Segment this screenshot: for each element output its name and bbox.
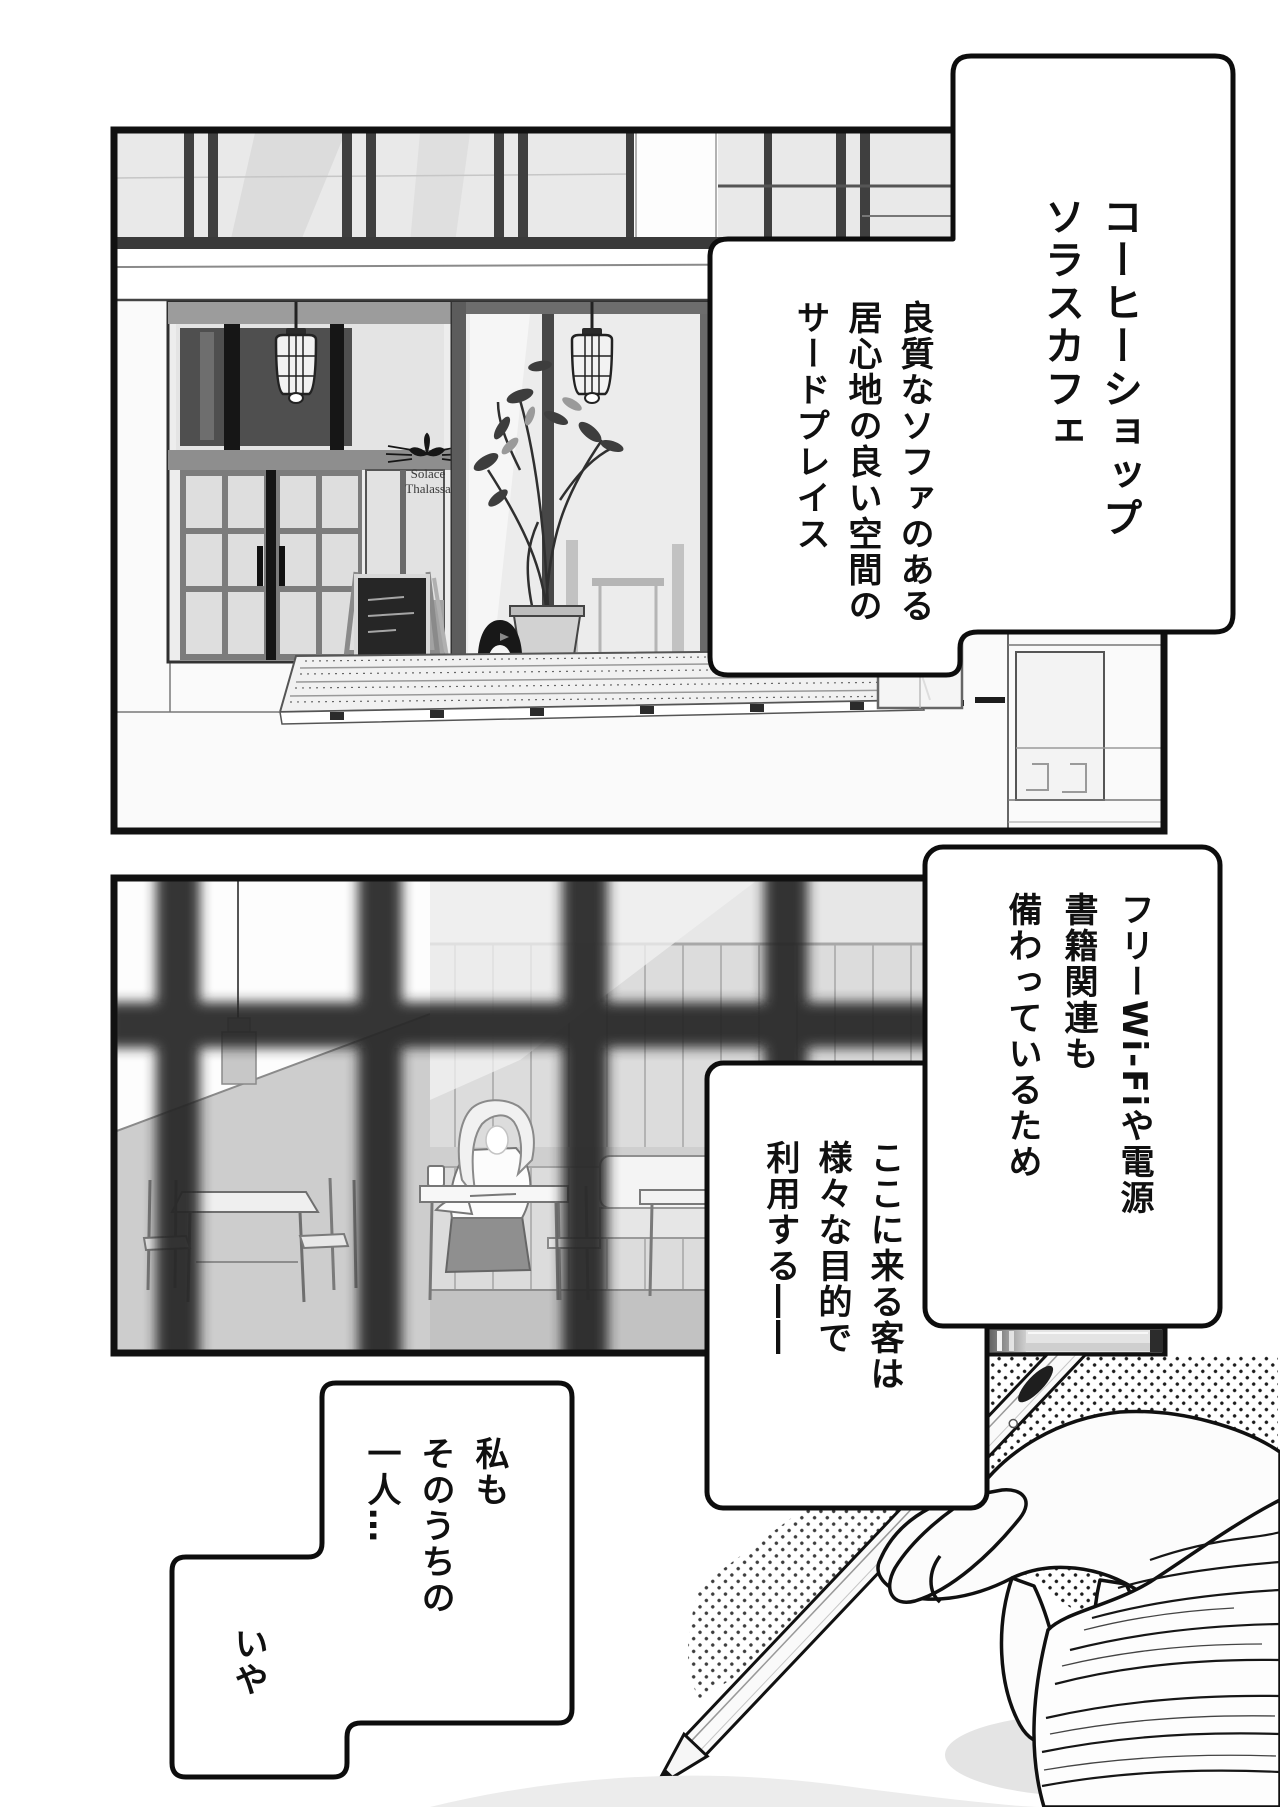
speech-bubble-amenities: フリーWi-Fiや電源 書籍関連も 備わっているため bbox=[994, 892, 1162, 1292]
vertical-text-line: サードプレイス bbox=[784, 300, 836, 650]
vertical-text-line: フリーWi-Fiや電源 bbox=[1106, 892, 1162, 1292]
vertical-text-line: 様々な目的で bbox=[806, 1140, 858, 1480]
vertical-text-line: いや bbox=[222, 1626, 274, 1746]
speech-bubble-space: 良質なソファのある 居心地の良い空間の サードプレイス bbox=[784, 300, 940, 650]
speech-bubble-customers: ここに来る客は 様々な目的で 利用する―― bbox=[754, 1140, 910, 1480]
speech-bubble-monologue: 私も そのうちの 一人… bbox=[354, 1436, 516, 1701]
speech-bubble-monologue-tail: いや bbox=[222, 1626, 274, 1746]
vertical-text-line: ここに来る客は bbox=[858, 1140, 910, 1480]
speech-bubble-cafe-name: コーヒーショップ ソラスカフェ bbox=[1032, 196, 1148, 586]
vertical-text-line: 備わっているため bbox=[994, 892, 1050, 1292]
vertical-text-line: 利用する―― bbox=[754, 1140, 806, 1480]
vertical-text-line: ソラスカフェ bbox=[1032, 196, 1090, 586]
vertical-text-line: 良質なソファのある bbox=[888, 300, 940, 650]
vertical-text-line: コーヒーショップ bbox=[1090, 196, 1148, 586]
vertical-text-line: 一人… bbox=[354, 1436, 408, 1701]
vertical-text-line: 書籍関連も bbox=[1050, 892, 1106, 1292]
manga-page: コーヒーショップ ソラスカフェ 良質なソファのある 居心地の良い空間の サードプ… bbox=[0, 0, 1280, 1807]
vertical-text-line: そのうちの bbox=[408, 1436, 462, 1701]
vertical-text-line: 居心地の良い空間の bbox=[836, 300, 888, 650]
vertical-text-line: 私も bbox=[462, 1436, 516, 1701]
